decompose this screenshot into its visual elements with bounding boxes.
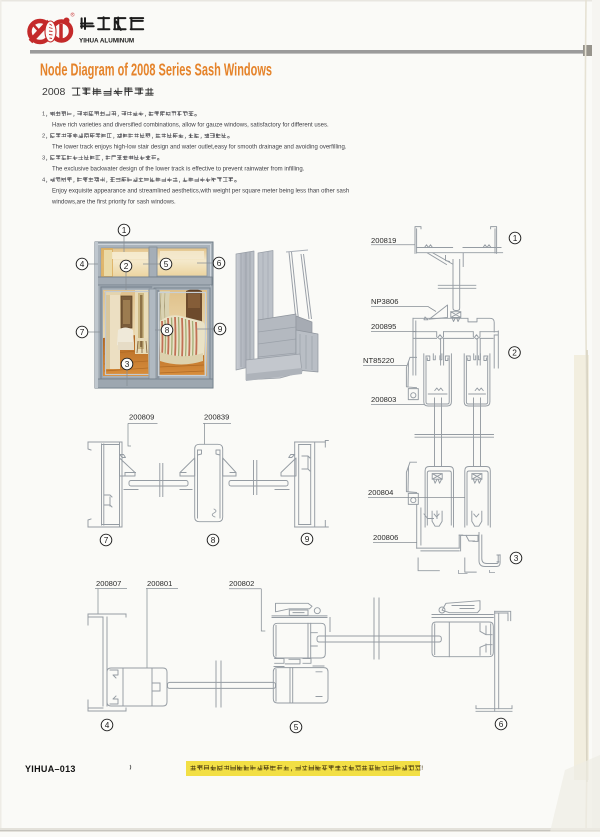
svg-text:6: 6 — [217, 258, 222, 268]
svg-text:5: 5 — [294, 722, 299, 732]
svg-text:3: 3 — [125, 359, 130, 369]
svg-text:200803: 200803 — [371, 395, 396, 404]
svg-text:The lower track enjoys high-lo: The lower track enjoys high-low stair de… — [52, 145, 347, 151]
svg-text:NT85220: NT85220 — [363, 356, 394, 365]
svg-text:6: 6 — [499, 719, 504, 729]
svg-text:4: 4 — [105, 720, 110, 730]
svg-text:200819: 200819 — [371, 236, 396, 245]
svg-text:4: 4 — [80, 259, 85, 269]
svg-text:7: 7 — [104, 535, 109, 545]
svg-text:2: 2 — [124, 261, 129, 271]
svg-text:200801: 200801 — [147, 579, 172, 588]
svg-text:YIHUA–013: YIHUA–013 — [25, 764, 76, 774]
svg-text:9: 9 — [218, 324, 223, 334]
svg-text:1: 1 — [122, 225, 127, 235]
svg-text:®: ® — [71, 12, 75, 19]
svg-text:9: 9 — [305, 534, 310, 544]
svg-text:YIHUA ALUMINUM: YIHUA ALUMINUM — [79, 38, 134, 45]
svg-text:200804: 200804 — [368, 488, 393, 497]
svg-text:!: ! — [421, 765, 423, 772]
svg-text:The exclusive backwater design: The exclusive backwater design of the lo… — [52, 167, 305, 173]
svg-text:200895: 200895 — [371, 322, 396, 331]
svg-text:3: 3 — [42, 156, 45, 162]
svg-text:200809: 200809 — [129, 413, 154, 422]
svg-text:2008: 2008 — [42, 86, 66, 98]
svg-text:200839: 200839 — [204, 413, 229, 422]
svg-text:8: 8 — [211, 535, 216, 545]
svg-text:200806: 200806 — [373, 533, 398, 542]
svg-text:NP3806: NP3806 — [371, 297, 398, 306]
svg-text:1: 1 — [42, 112, 45, 118]
svg-text:Have rich varieties and divers: Have rich varieties and diversified comb… — [52, 123, 329, 129]
svg-text:Enjoy exquisite appearance and: Enjoy exquisite appearance and streamlin… — [52, 189, 349, 195]
svg-text:5: 5 — [164, 259, 169, 269]
svg-text:200802: 200802 — [229, 579, 254, 588]
svg-text:3: 3 — [514, 553, 519, 563]
svg-text:200807: 200807 — [96, 579, 121, 588]
svg-text:2: 2 — [512, 347, 517, 357]
svg-text:7: 7 — [80, 327, 85, 337]
svg-text:windows,are the first priority: windows,are the first priority for sash … — [51, 200, 176, 206]
svg-text:8: 8 — [165, 325, 170, 335]
svg-text:1: 1 — [513, 233, 518, 243]
svg-text:2: 2 — [42, 134, 45, 140]
svg-text:Node Diagram of 2008 Series Sa: Node Diagram of 2008 Series Sash Windows — [40, 61, 272, 80]
